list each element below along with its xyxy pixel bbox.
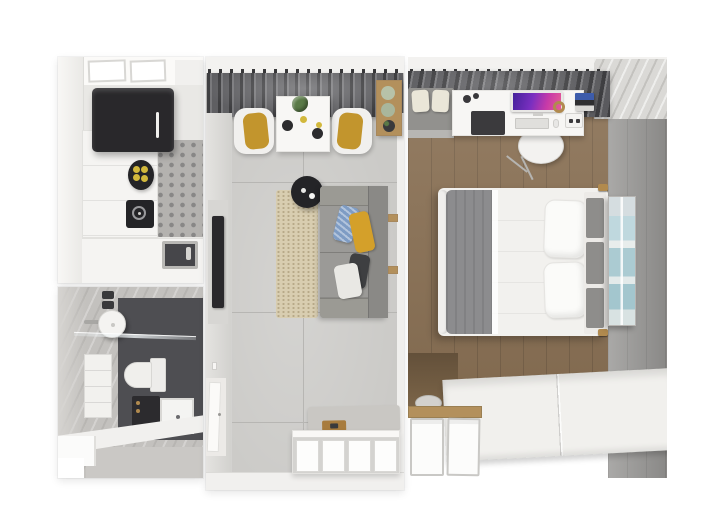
bed-pillow — [543, 261, 587, 318]
headboard — [584, 192, 606, 334]
headboard-cushion — [586, 242, 604, 284]
kitchen-left-wall — [58, 57, 84, 283]
fruit — [133, 174, 140, 181]
living-bottom-wall — [206, 472, 404, 490]
bench-cushion — [411, 89, 429, 112]
plate — [312, 128, 323, 139]
shelf-rung — [388, 214, 398, 222]
storage-bin — [446, 418, 480, 477]
shower-drain — [176, 415, 180, 419]
wall-art — [608, 196, 636, 326]
keyboard — [515, 118, 549, 129]
lemon — [316, 122, 322, 128]
fruit — [141, 175, 148, 182]
bed-blanket — [446, 190, 492, 334]
kitchen-sink — [162, 241, 198, 269]
light-switch — [212, 362, 217, 370]
tray-item — [330, 423, 338, 428]
desk-item — [473, 93, 479, 99]
speaker-button — [576, 119, 580, 123]
plate — [282, 120, 293, 131]
chair-cushion — [336, 112, 364, 150]
floorplan-render — [0, 0, 714, 531]
toilet-tank — [150, 358, 166, 392]
double-bed — [438, 188, 608, 336]
fruit — [141, 166, 148, 173]
ladder-shelf — [388, 208, 398, 294]
cup — [309, 193, 315, 199]
basin-drain — [111, 323, 115, 327]
towel — [102, 291, 114, 299]
bench-front — [408, 130, 454, 138]
fruit — [133, 166, 140, 173]
entry-notch — [58, 458, 84, 478]
kitchen-window-pane — [88, 59, 127, 82]
washer-knob — [136, 401, 140, 405]
dining-chair-right — [332, 108, 372, 154]
sideboard-front — [296, 440, 319, 472]
wall-tv — [212, 216, 224, 308]
bedroom-room — [408, 57, 667, 490]
bedroom-bench — [408, 88, 454, 138]
cooktop-dot — [138, 212, 141, 215]
bathroom-bottom-wall — [86, 447, 203, 478]
door-leaf — [207, 382, 221, 452]
plant-pot-dark — [383, 120, 395, 132]
headboard-cushion — [586, 288, 604, 328]
chair-cushion — [242, 112, 270, 150]
plant-shelf — [376, 80, 402, 136]
wood-shelf — [408, 406, 482, 418]
lemon — [300, 116, 307, 123]
sofa-backrest — [368, 186, 388, 318]
kitchen-window-pane — [130, 59, 167, 82]
kitchen-room — [58, 57, 203, 283]
book-stack — [575, 93, 594, 111]
sideboard-front — [374, 440, 397, 472]
desk-pad — [471, 111, 505, 135]
brass-bracket — [598, 184, 608, 191]
bed-pillow — [543, 199, 587, 258]
headboard-cushion — [586, 198, 604, 238]
kitchen-tiled-backsplash — [155, 140, 203, 237]
refrigerator — [92, 88, 174, 152]
toilet — [124, 362, 152, 388]
monitor-stand — [533, 113, 543, 116]
sideboard-front — [322, 440, 345, 472]
dining-chair-left — [234, 108, 274, 154]
sideboard — [292, 430, 400, 474]
sideboard-top — [293, 431, 399, 438]
mouse — [553, 119, 559, 128]
kitchen-faucet — [186, 247, 191, 260]
door-handle — [218, 413, 221, 416]
sideboard-front — [348, 440, 371, 472]
vanity-cabinet — [84, 354, 112, 418]
bench-cushion — [431, 90, 449, 113]
sofa — [320, 186, 388, 318]
brass-bracket — [598, 329, 608, 336]
plant-pot — [381, 86, 395, 100]
towel — [102, 301, 114, 309]
speaker — [565, 113, 583, 128]
area-rug — [276, 190, 318, 318]
plant-pot — [381, 103, 395, 117]
storage-bin — [410, 418, 444, 476]
coffee-table — [291, 176, 323, 208]
speaker-button — [569, 119, 573, 123]
refrigerator-handle — [156, 112, 159, 138]
desk — [452, 90, 584, 136]
cooktop — [126, 200, 154, 228]
ottoman-bench — [308, 405, 401, 433]
shelf-rung — [388, 266, 398, 274]
fruit-bowl — [128, 160, 154, 190]
desk-item — [463, 95, 471, 103]
cup — [301, 188, 306, 193]
living-room — [206, 57, 404, 490]
washer-knob — [136, 409, 140, 413]
bathroom-room — [58, 287, 203, 478]
headphones — [553, 101, 565, 113]
